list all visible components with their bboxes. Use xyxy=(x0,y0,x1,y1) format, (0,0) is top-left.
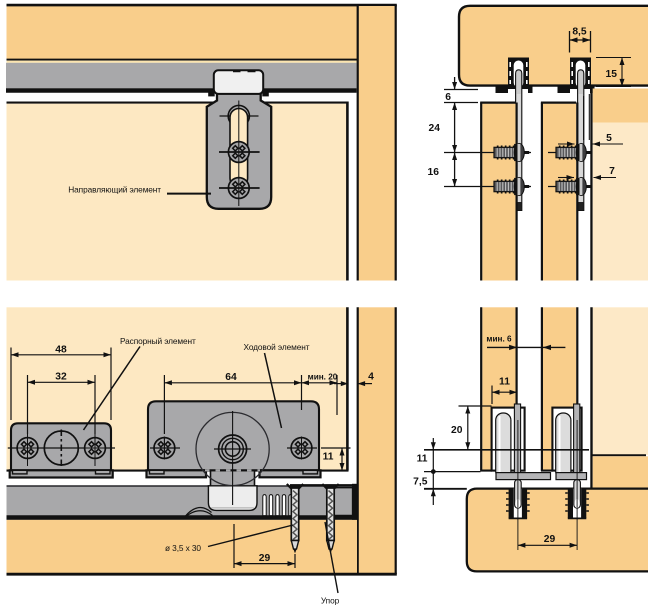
svg-text:29: 29 xyxy=(544,534,556,545)
svg-text:7,5: 7,5 xyxy=(413,477,428,488)
svg-text:мин. 20: мин. 20 xyxy=(308,373,338,382)
svg-text:20: 20 xyxy=(451,425,463,436)
svg-text:5: 5 xyxy=(606,133,612,144)
svg-text:15: 15 xyxy=(606,69,618,80)
svg-text:мин. 6: мин. 6 xyxy=(486,335,512,344)
svg-text:32: 32 xyxy=(55,372,67,383)
svg-text:29: 29 xyxy=(259,553,271,564)
svg-text:Ходовой элемент: Ходовой элемент xyxy=(244,342,310,352)
svg-text:7: 7 xyxy=(609,166,615,177)
svg-text:6: 6 xyxy=(445,92,451,103)
svg-text:11: 11 xyxy=(323,452,334,463)
svg-text:4: 4 xyxy=(368,372,374,383)
svg-text:11: 11 xyxy=(417,453,428,464)
svg-text:64: 64 xyxy=(225,372,237,383)
svg-text:ø 3,5 x 30: ø 3,5 x 30 xyxy=(165,543,201,553)
svg-text:8,5: 8,5 xyxy=(572,27,587,38)
svg-text:24: 24 xyxy=(429,123,441,134)
svg-text:Упор: Упор xyxy=(321,596,340,606)
svg-text:16: 16 xyxy=(428,167,440,178)
svg-text:Направляющий элемент: Направляющий элемент xyxy=(68,185,161,195)
svg-text:11: 11 xyxy=(499,377,510,388)
svg-text:Распорный элемент: Распорный элемент xyxy=(120,336,196,346)
svg-text:48: 48 xyxy=(55,344,67,355)
